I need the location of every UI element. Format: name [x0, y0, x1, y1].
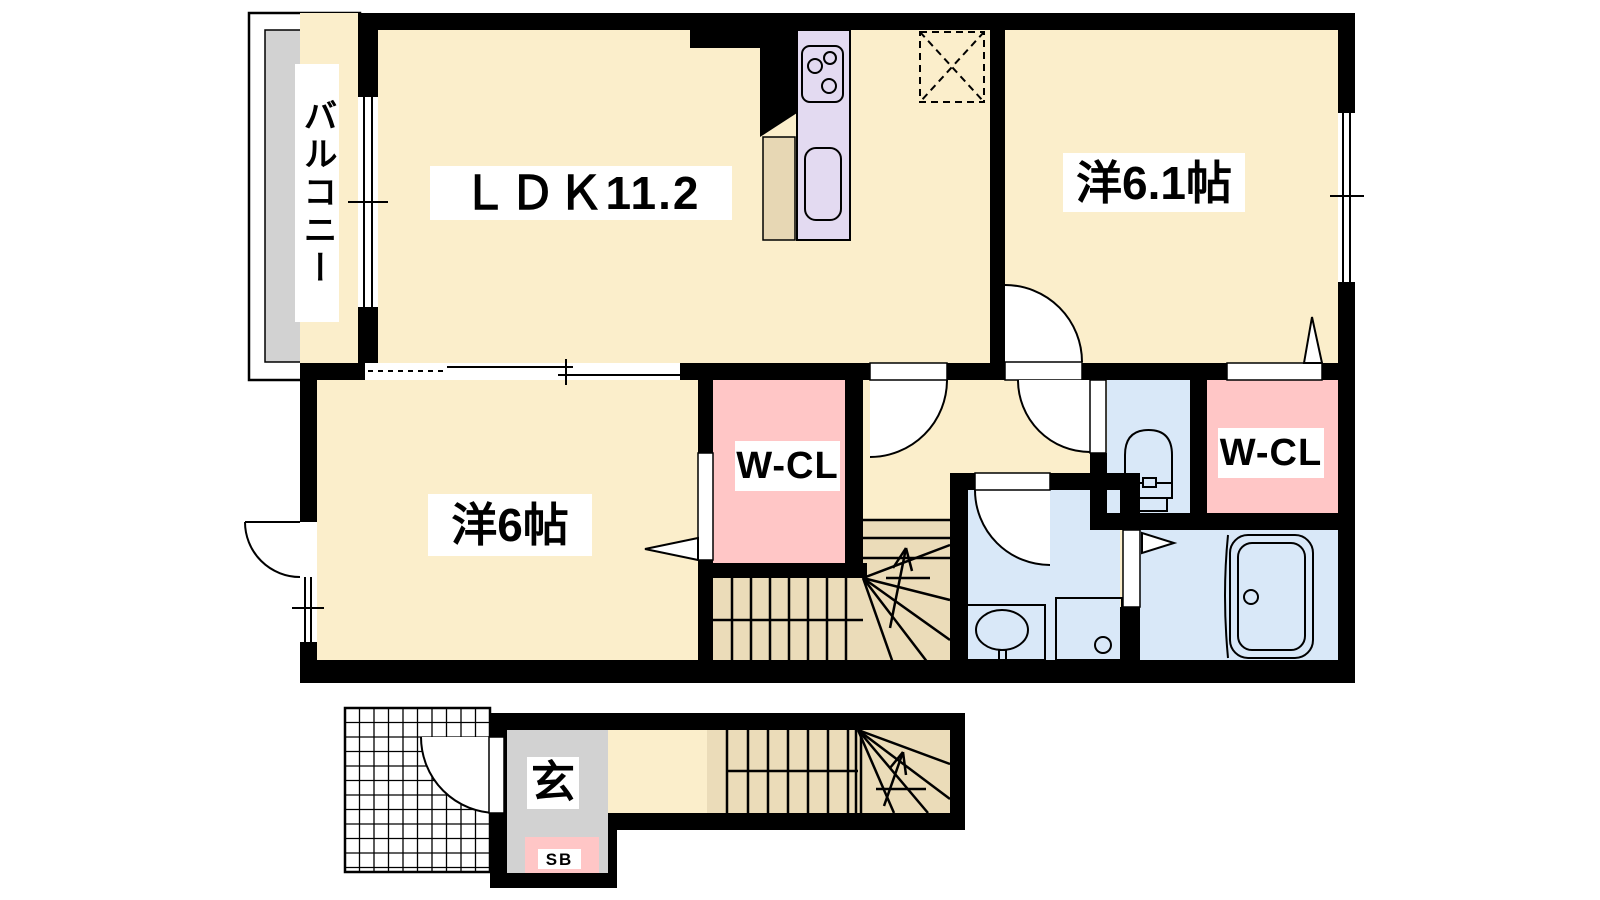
shoe-box-label: SB: [538, 849, 581, 869]
casement-window-icon: [245, 522, 317, 577]
ldk-label: ＬＤＫ11.2: [430, 166, 732, 220]
kitchen-side-panel: [763, 137, 795, 240]
entrance-label: 玄: [527, 757, 579, 809]
western-room-6-label: 洋6帖: [428, 494, 592, 556]
entrance-hall-floor: [608, 730, 707, 813]
balcony-label: バルコニー: [295, 64, 339, 322]
western-room-61-label: 洋6.1帖: [1063, 153, 1245, 212]
walk-in-closet-1-label: W-CL: [735, 441, 840, 491]
walk-in-closet-2-label: W-CL: [1218, 428, 1324, 478]
floor-plan-page: バルコニー ＬＤＫ11.2 洋6.1帖 洋6帖 W-CL W-CL 玄 SB: [0, 0, 1600, 900]
entrance-block: [345, 708, 965, 888]
